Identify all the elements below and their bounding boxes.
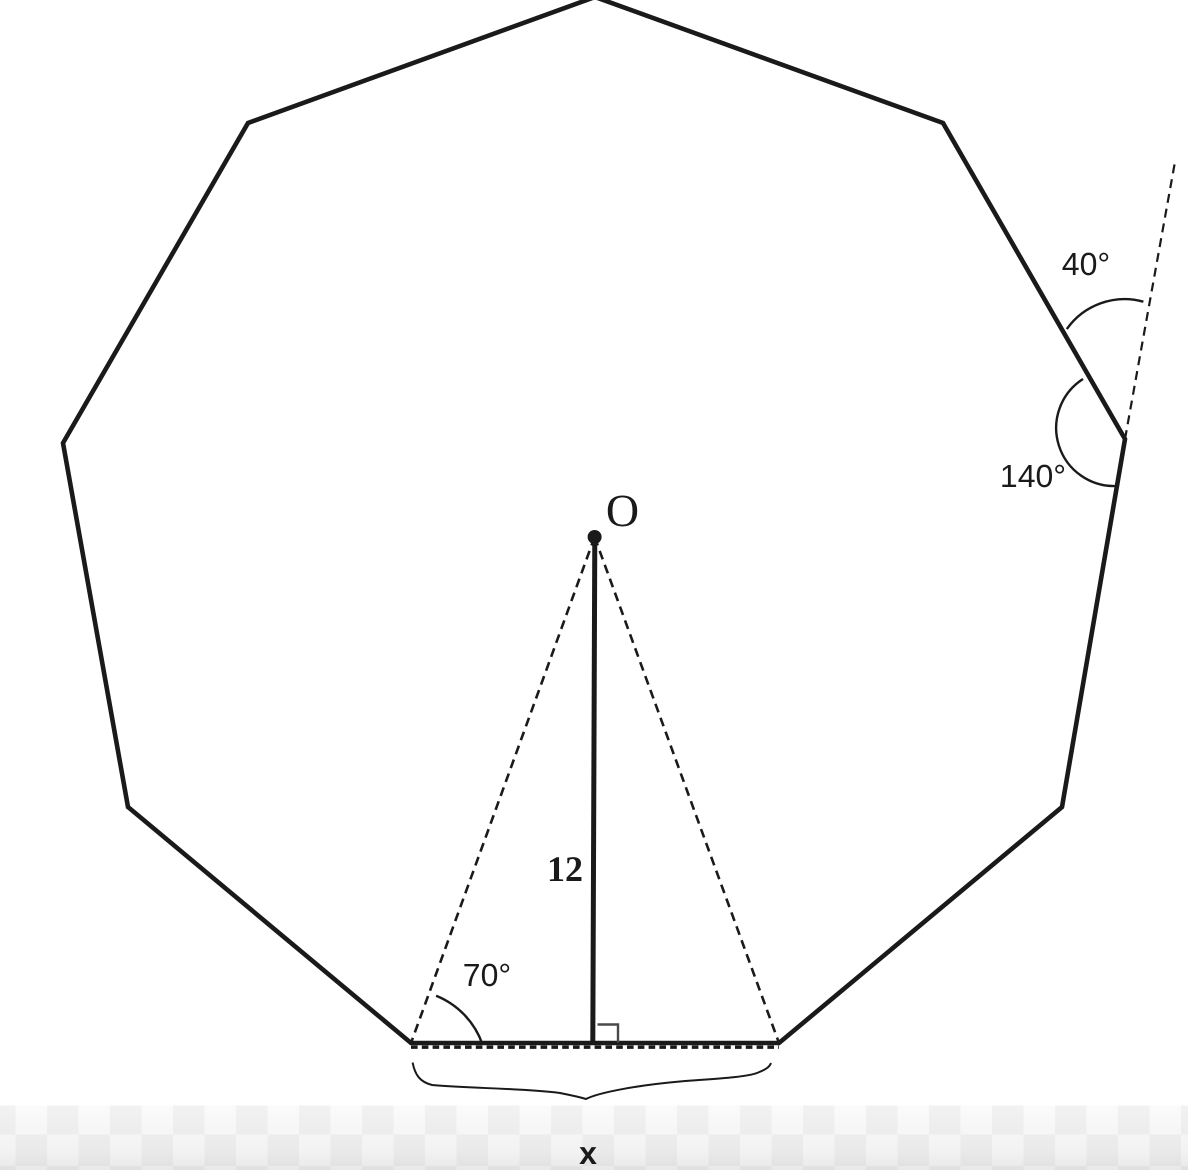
svg-text:O: O xyxy=(606,485,639,536)
svg-text:12: 12 xyxy=(547,849,583,889)
svg-text:x: x xyxy=(579,1135,597,1170)
svg-text:40°: 40° xyxy=(1062,246,1110,282)
svg-text:70°: 70° xyxy=(463,957,511,993)
svg-text:140°: 140° xyxy=(1000,458,1066,494)
